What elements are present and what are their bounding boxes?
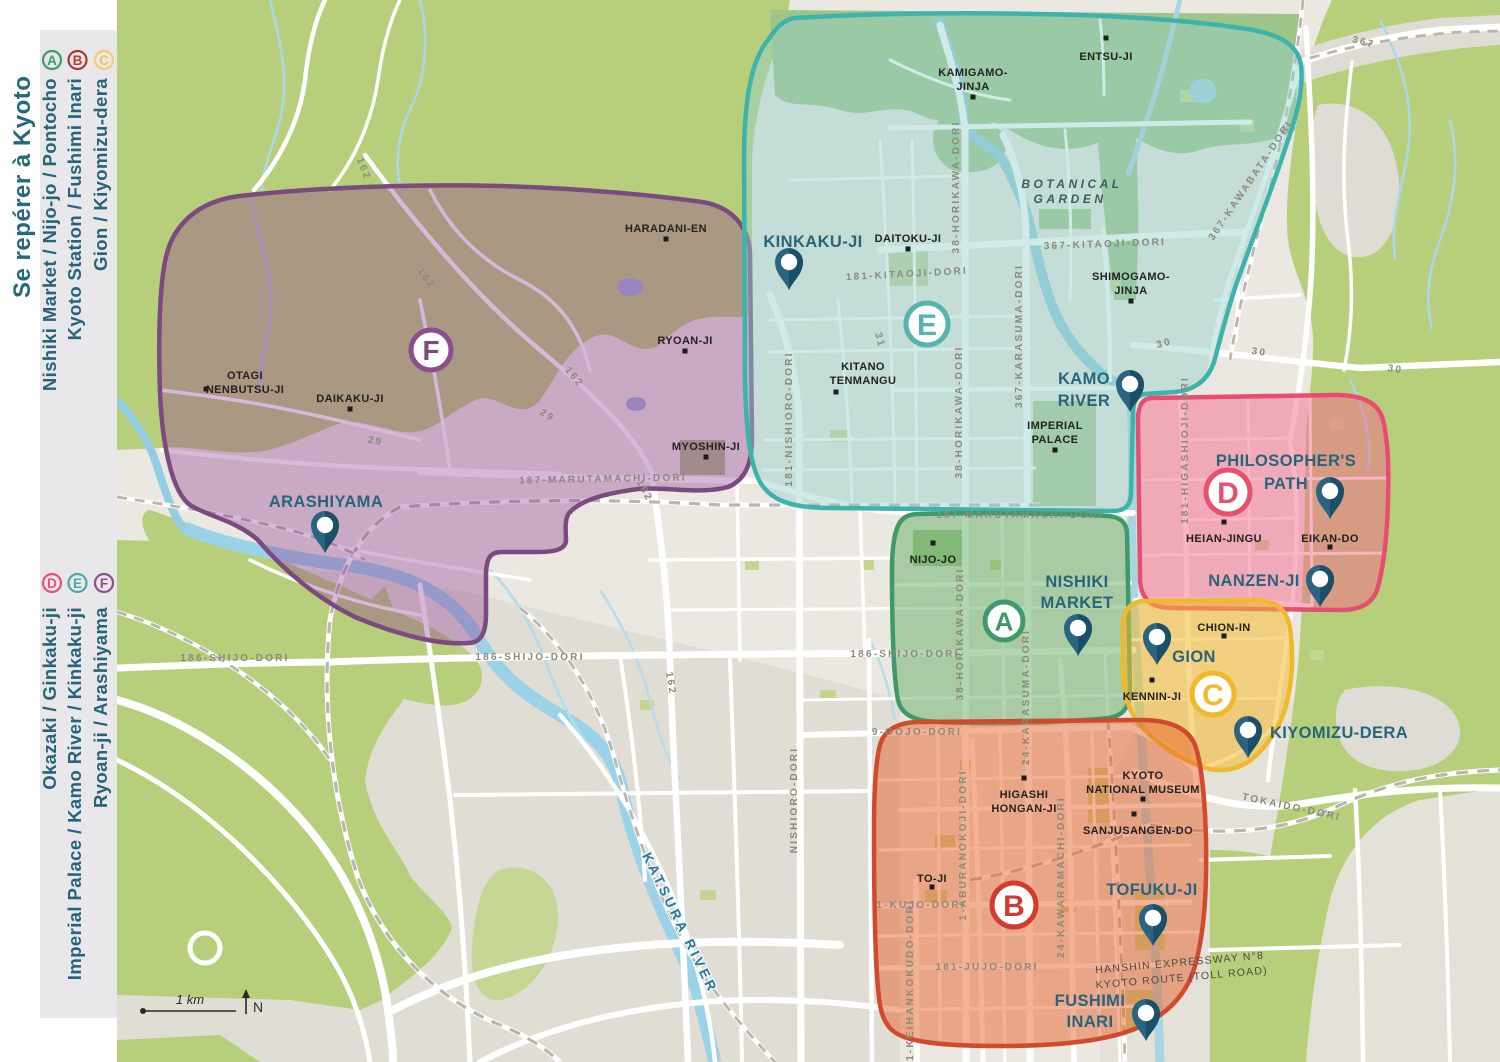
svg-text:RYOAN-JI: RYOAN-JI — [657, 335, 712, 347]
svg-text:KIYOMIZU-DERA: KIYOMIZU-DERA — [1270, 724, 1408, 742]
svg-text:NANZEN-JI: NANZEN-JI — [1208, 572, 1300, 590]
svg-text:GARDEN: GARDEN — [1033, 192, 1106, 206]
svg-text:Nishiki Market / Nijo-jo / Pon: Nishiki Market / Nijo-jo / Pontocho — [39, 78, 60, 391]
svg-text:FUSHIMI: FUSHIMI — [1055, 992, 1126, 1010]
svg-text:SANJUSANGEN-DO: SANJUSANGEN-DO — [1083, 825, 1193, 837]
svg-text:PATH: PATH — [1264, 475, 1308, 493]
svg-text:TOFUKU-JI: TOFUKU-JI — [1106, 881, 1197, 899]
svg-text:1-KEIHANKOKUDO-DORI: 1-KEIHANKOKUDO-DORI — [905, 899, 916, 1061]
svg-text:E: E — [73, 576, 82, 591]
svg-text:TENMANGU: TENMANGU — [830, 375, 897, 387]
svg-text:MARKET: MARKET — [1041, 594, 1114, 612]
svg-text:C: C — [99, 53, 109, 68]
svg-text:B: B — [73, 53, 83, 68]
svg-text:OTAGI: OTAGI — [227, 370, 263, 382]
svg-text:38-HORIKAWA-DORI: 38-HORIKAWA-DORI — [951, 121, 962, 254]
svg-text:181-JUJO-DORI: 181-JUJO-DORI — [935, 962, 1038, 973]
svg-text:Kyoto Station / Fushimi Inari: Kyoto Station / Fushimi Inari — [64, 78, 85, 340]
svg-text:Imperial Palace / Kamo River /: Imperial Palace / Kamo River / Kinkaku-j… — [64, 607, 85, 980]
svg-text:N: N — [253, 999, 263, 1015]
svg-text:Se repérer à Kyoto: Se repérer à Kyoto — [9, 76, 36, 298]
svg-text:181-NISHIORO-DORI: 181-NISHIORO-DORI — [784, 351, 795, 486]
svg-text:DAITOKU-JI: DAITOKU-JI — [875, 233, 942, 245]
svg-text:PHILOSOPHER'S: PHILOSOPHER'S — [1216, 452, 1356, 470]
svg-text:B: B — [1003, 890, 1025, 923]
svg-text:KYOTO: KYOTO — [1123, 770, 1164, 782]
svg-text:KAMO: KAMO — [1058, 370, 1110, 388]
svg-text:KITANO: KITANO — [841, 361, 885, 373]
svg-text:SHIMOGAMO-: SHIMOGAMO- — [1092, 271, 1170, 283]
svg-text:186-SHIJO-DORI: 186-SHIJO-DORI — [475, 652, 584, 663]
svg-text:38-HORIKAWA-DORI: 38-HORIKAWA-DORI — [955, 568, 966, 701]
svg-text:NISHIKI: NISHIKI — [1045, 573, 1108, 591]
svg-text:NIJO-JO: NIJO-JO — [910, 554, 957, 566]
svg-text:IMPERIAL: IMPERIAL — [1027, 420, 1083, 432]
svg-text:367-KARASUMA-DORI: 367-KARASUMA-DORI — [1014, 264, 1025, 408]
svg-text:24-KARASUMA-DORI: 24-KARASUMA-DORI — [1021, 629, 1032, 765]
svg-text:NATIONAL MUSEUM: NATIONAL MUSEUM — [1086, 784, 1200, 796]
svg-text:A: A — [47, 53, 57, 68]
svg-text:TO-JI: TO-JI — [917, 873, 947, 885]
svg-text:INARI: INARI — [1067, 1013, 1114, 1031]
svg-text:38-HORIKAWA-DORI: 38-HORIKAWA-DORI — [954, 346, 965, 479]
svg-text:HONGAN-JI: HONGAN-JI — [991, 803, 1056, 815]
svg-text:KENNIN-JI: KENNIN-JI — [1123, 691, 1182, 703]
svg-text:JINJA: JINJA — [1114, 285, 1147, 297]
svg-text:186-SHIJO-DORI: 186-SHIJO-DORI — [850, 649, 959, 660]
svg-text:186-SHIJO-DORI: 186-SHIJO-DORI — [180, 653, 289, 664]
svg-text:1-ABURANOKOJI-DORI: 1-ABURANOKOJI-DORI — [958, 769, 969, 920]
svg-text:Ryoan-ji / Arashiyama: Ryoan-ji / Arashiyama — [90, 607, 111, 808]
svg-text:F: F — [422, 335, 439, 366]
svg-text:181-HIGASHIOJI-DORI: 181-HIGASHIOJI-DORI — [1180, 376, 1191, 524]
svg-text:1 km: 1 km — [176, 992, 204, 1007]
svg-text:C: C — [1202, 679, 1224, 712]
svg-text:BOTANICAL: BOTANICAL — [1021, 177, 1122, 191]
svg-text:RIVER: RIVER — [1058, 392, 1110, 410]
svg-text:HEIAN-JINGU: HEIAN-JINGU — [1186, 533, 1262, 545]
svg-text:MYOSHIN-JI: MYOSHIN-JI — [672, 441, 740, 453]
svg-text:Okazaki / Ginkaku-ji: Okazaki / Ginkaku-ji — [39, 607, 60, 790]
svg-text:30: 30 — [1251, 346, 1268, 359]
svg-text:GION: GION — [1172, 648, 1216, 666]
svg-text:NISHIORO-DORI: NISHIORO-DORI — [789, 747, 800, 853]
svg-text:NENBUTSU-JI: NENBUTSU-JI — [206, 384, 284, 396]
svg-text:KAMIGAMO-: KAMIGAMO- — [938, 67, 1008, 79]
svg-text:JINJA: JINJA — [956, 81, 989, 93]
svg-text:1-KUJO-DORI: 1-KUJO-DORI — [876, 900, 965, 911]
svg-text:D: D — [47, 576, 57, 591]
svg-text:24-KAWARAMACHI-DORI: 24-KAWARAMACHI-DORI — [1056, 796, 1067, 958]
svg-text:ARASHIYAMA: ARASHIYAMA — [269, 493, 383, 511]
svg-text:A: A — [995, 606, 1014, 636]
svg-text:Gion / Kiyomizu-dera: Gion / Kiyomizu-dera — [90, 78, 111, 271]
svg-text:DAIKAKU-JI: DAIKAKU-JI — [316, 393, 384, 405]
svg-text:HIGASHI: HIGASHI — [1000, 789, 1049, 801]
svg-text:9-GOJO-DORI: 9-GOJO-DORI — [872, 727, 962, 738]
svg-text:30: 30 — [1387, 363, 1404, 376]
svg-text:CHION-IN: CHION-IN — [1197, 622, 1250, 634]
svg-text:PALACE: PALACE — [1032, 434, 1079, 446]
svg-text:D: D — [1217, 477, 1239, 510]
svg-text:ENTSU-JI: ENTSU-JI — [1079, 51, 1132, 63]
svg-text:HARADANI-EN: HARADANI-EN — [625, 223, 707, 235]
svg-text:KINKAKU-JI: KINKAKU-JI — [763, 233, 862, 251]
svg-text:F: F — [100, 576, 108, 591]
svg-text:E: E — [917, 309, 937, 342]
svg-text:187-MARUTAMACHI-DORI: 187-MARUTAMACHI-DORI — [936, 510, 1104, 521]
svg-text:EIKAN-DO: EIKAN-DO — [1301, 533, 1359, 545]
